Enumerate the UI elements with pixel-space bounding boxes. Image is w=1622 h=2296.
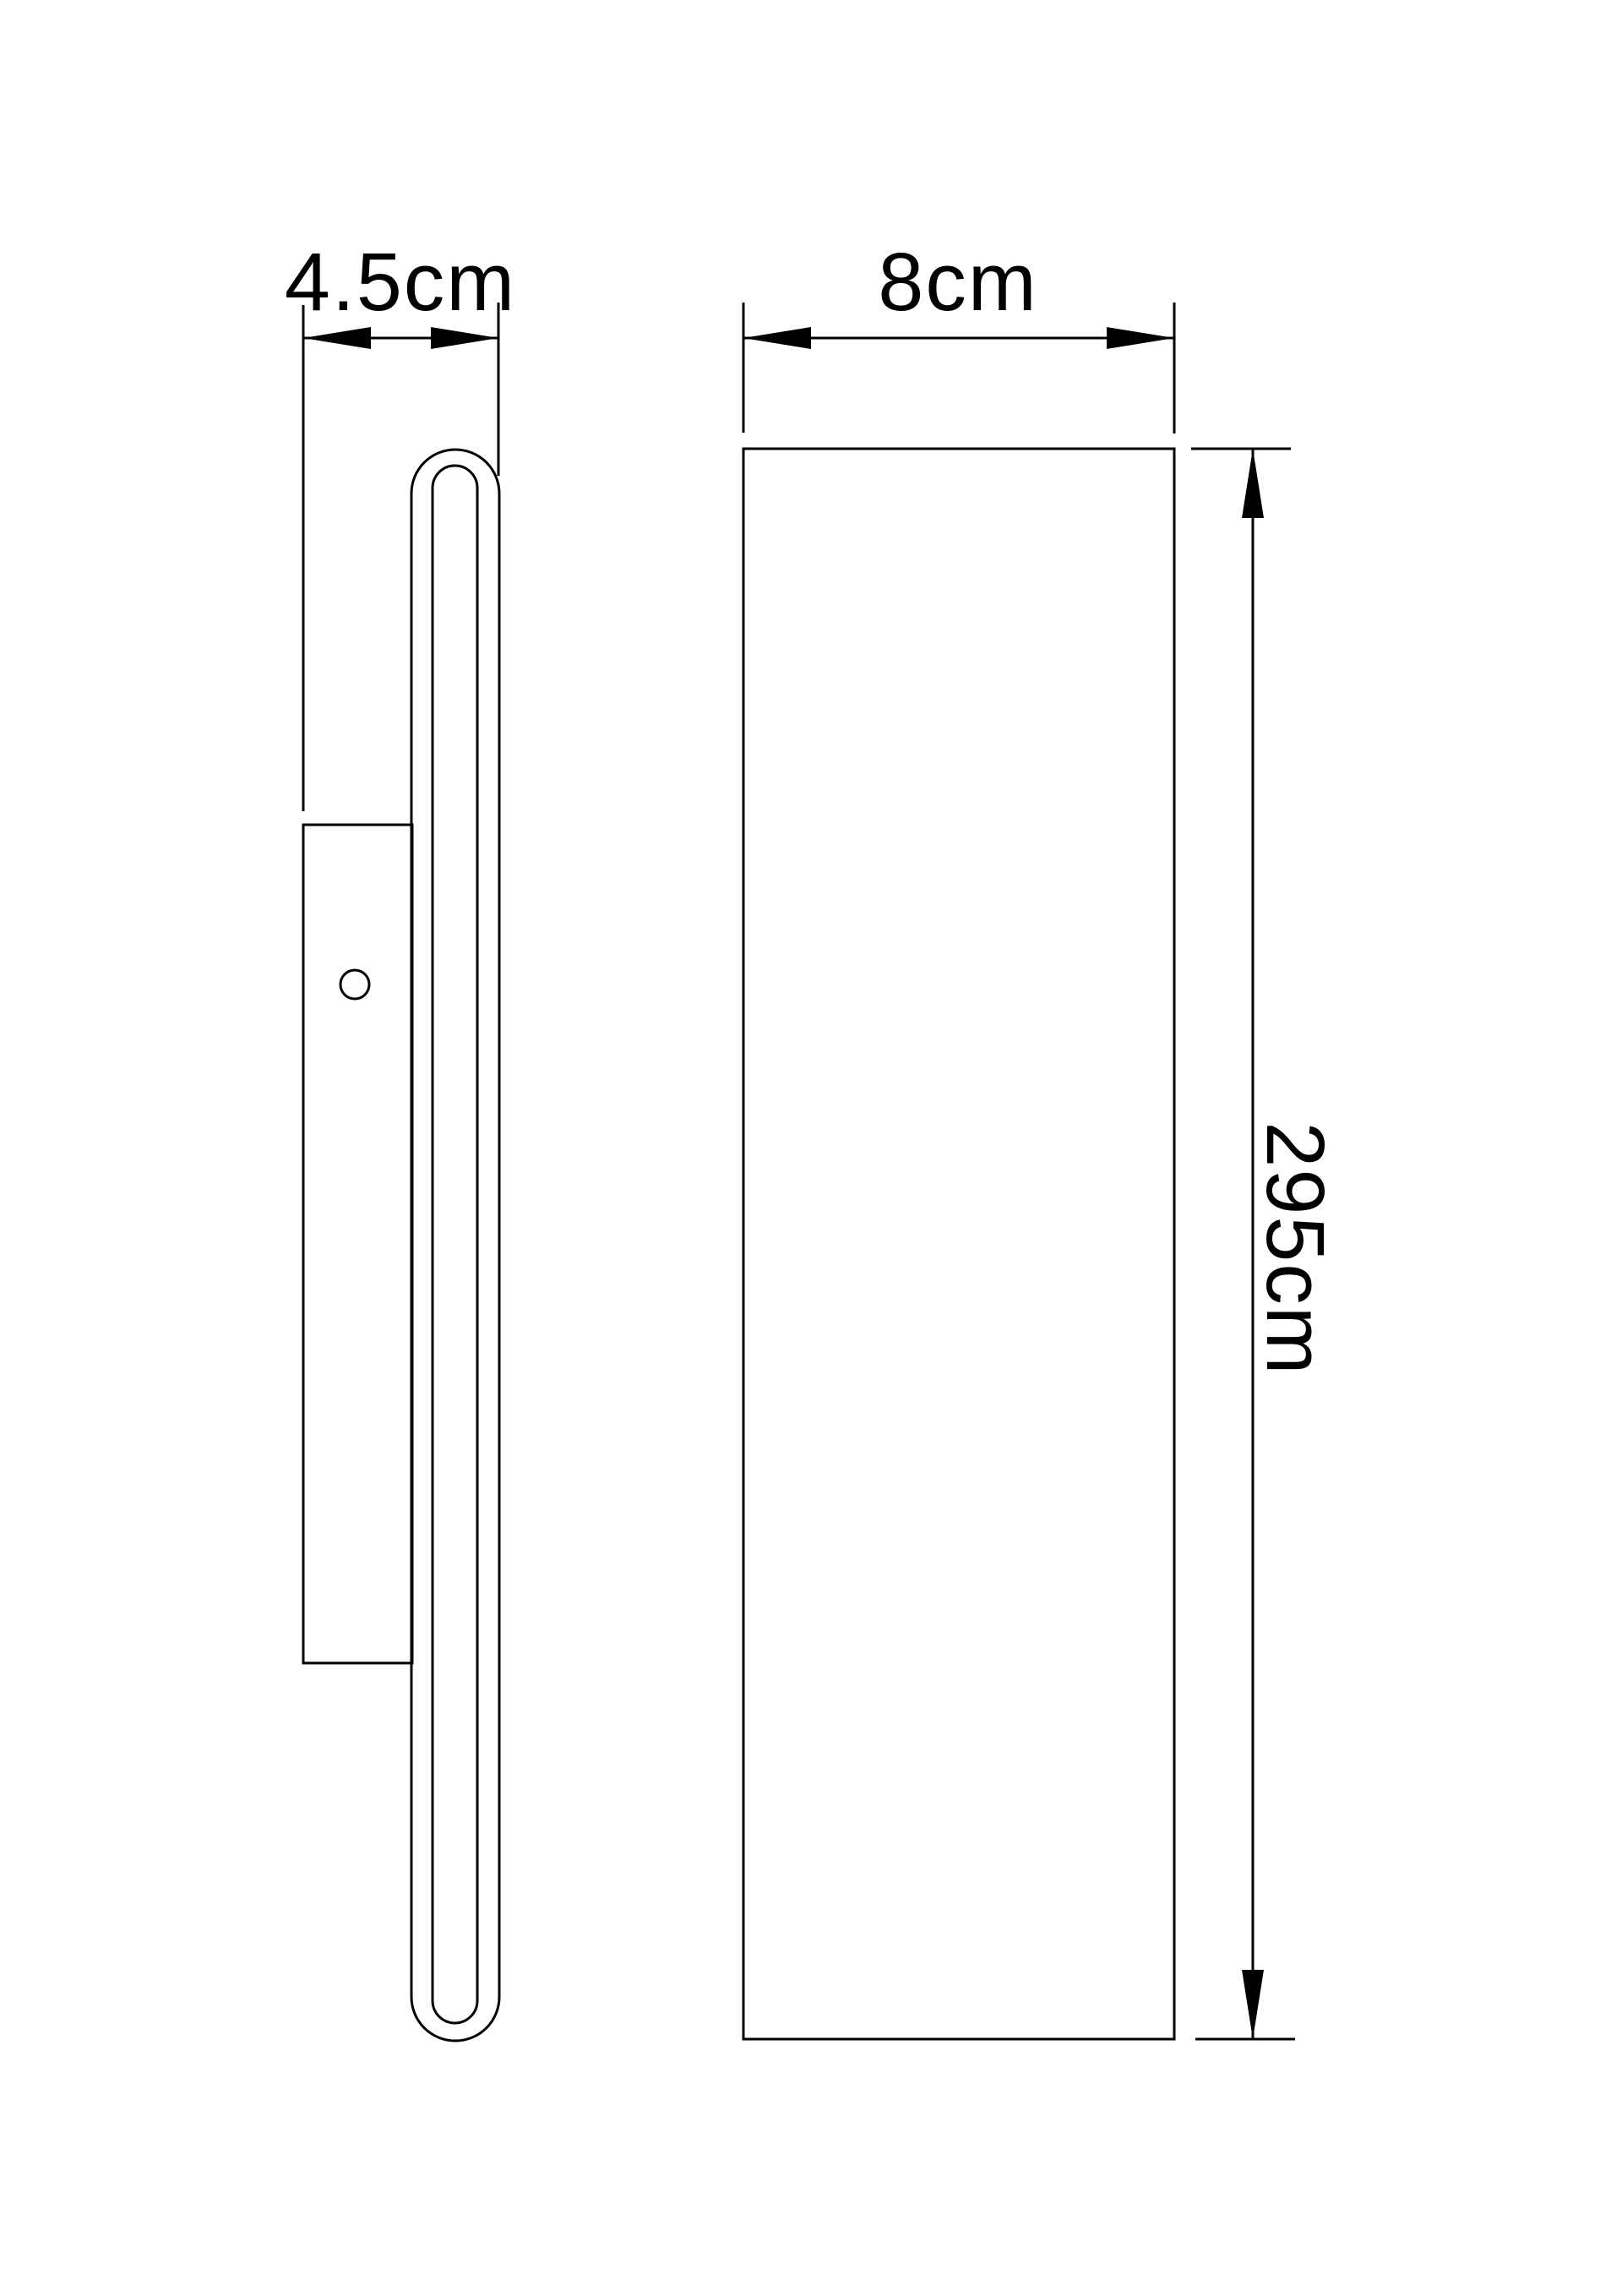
- depth-arrowhead-left-icon: [303, 327, 371, 349]
- depth-dimension: 4.5cm: [285, 236, 516, 811]
- side-view: [303, 450, 499, 2041]
- width-arrowhead-right-icon: [1107, 327, 1174, 349]
- mounting-hole: [340, 970, 369, 999]
- height-dimension: 295cm: [1191, 449, 1342, 2039]
- depth-dimension-label: 4.5cm: [285, 236, 516, 328]
- height-dimension-label: 295cm: [1249, 1121, 1342, 1376]
- width-dimension: 8cm: [743, 236, 1174, 434]
- wall-bracket-plate: [303, 825, 412, 1663]
- lamp-body-profile-inner: [433, 466, 477, 2023]
- dimension-drawing: 4.5cm 8cm 295cm: [0, 0, 1622, 2296]
- lamp-body-profile-outer: [411, 450, 499, 2041]
- height-arrowhead-top-icon: [1242, 449, 1264, 518]
- width-dimension-label: 8cm: [878, 236, 1037, 328]
- height-arrowhead-bottom-icon: [1242, 1970, 1264, 2039]
- drawing-page: 4.5cm 8cm 295cm: [0, 0, 1622, 2296]
- width-arrowhead-left-icon: [743, 327, 811, 349]
- depth-arrowhead-right-icon: [431, 327, 498, 349]
- front-view: [743, 449, 1174, 2039]
- lamp-body-front-panel: [743, 449, 1174, 2039]
